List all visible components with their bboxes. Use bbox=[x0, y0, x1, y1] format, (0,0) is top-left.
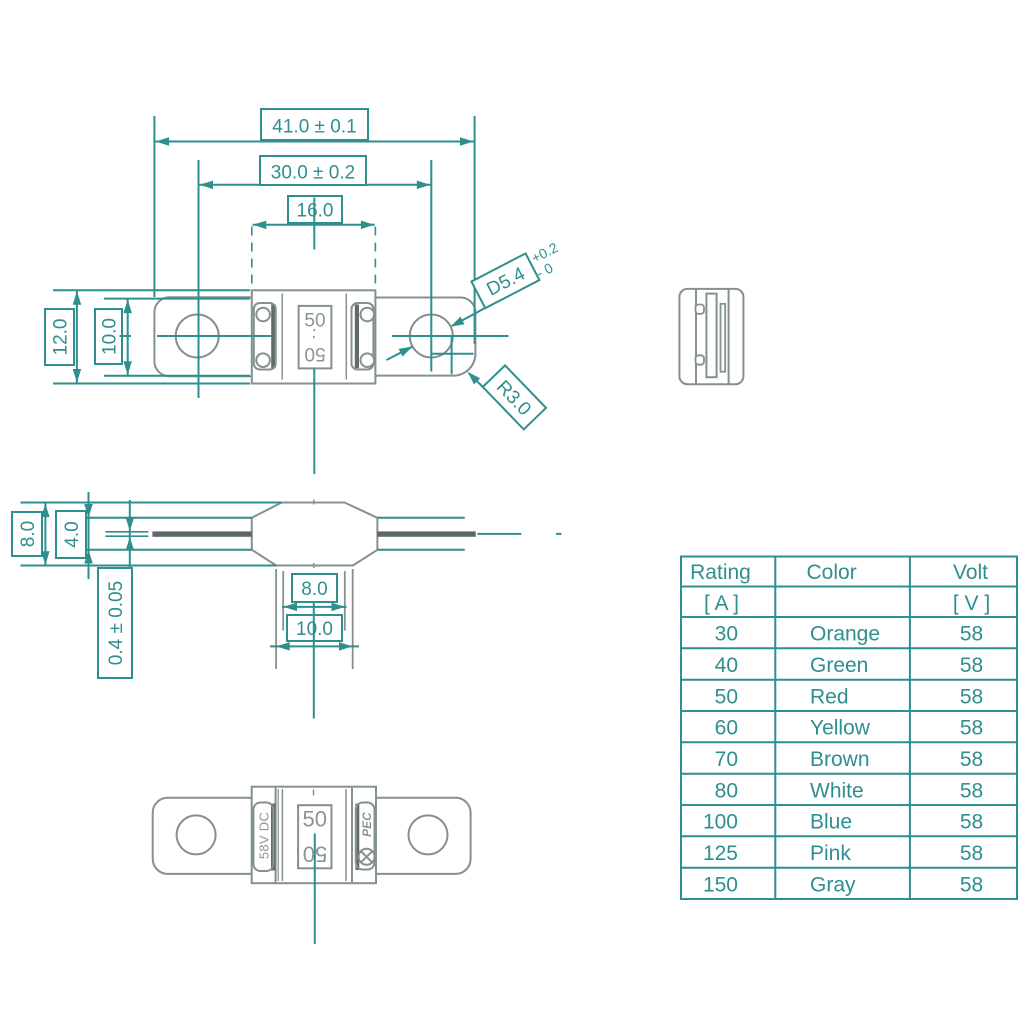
svg-text:[ V ]: [ V ] bbox=[953, 592, 990, 615]
svg-text:30.0 ± 0.2: 30.0 ± 0.2 bbox=[271, 162, 355, 183]
svg-text:Red: Red bbox=[810, 685, 849, 708]
svg-text:Orange: Orange bbox=[810, 623, 880, 646]
svg-text:50: 50 bbox=[715, 685, 738, 708]
svg-text:50: 50 bbox=[303, 807, 327, 832]
svg-text:0.4 ± 0.05: 0.4 ± 0.05 bbox=[106, 581, 127, 665]
svg-text:Brown: Brown bbox=[810, 748, 870, 771]
svg-text:Color: Color bbox=[807, 561, 857, 584]
svg-text:58: 58 bbox=[960, 654, 983, 677]
svg-text:White: White bbox=[810, 779, 864, 802]
svg-text:100: 100 bbox=[703, 811, 738, 834]
svg-text:125: 125 bbox=[703, 842, 738, 865]
svg-text:58: 58 bbox=[960, 717, 983, 740]
svg-text:58: 58 bbox=[960, 685, 983, 708]
svg-text:12.0: 12.0 bbox=[50, 319, 71, 356]
svg-text:10.0: 10.0 bbox=[99, 318, 120, 355]
svg-text:8.0: 8.0 bbox=[18, 521, 39, 547]
svg-text:58: 58 bbox=[960, 842, 983, 865]
svg-text:Volt: Volt bbox=[953, 561, 988, 584]
svg-text:Blue: Blue bbox=[810, 811, 852, 834]
svg-text:58: 58 bbox=[960, 873, 983, 896]
svg-text:PEC: PEC bbox=[360, 812, 374, 837]
svg-text:58: 58 bbox=[960, 623, 983, 646]
svg-text:80: 80 bbox=[715, 779, 738, 802]
svg-text:Green: Green bbox=[810, 654, 868, 677]
svg-text:58: 58 bbox=[960, 748, 983, 771]
svg-text:58: 58 bbox=[960, 779, 983, 802]
svg-text:60: 60 bbox=[715, 717, 738, 740]
svg-text:58V DC: 58V DC bbox=[257, 812, 272, 859]
svg-text:30: 30 bbox=[715, 623, 738, 646]
svg-text:Pink: Pink bbox=[810, 842, 851, 865]
svg-text:50: 50 bbox=[304, 310, 325, 331]
svg-text:[ A ]: [ A ] bbox=[704, 592, 739, 615]
svg-text:41.0 ± 0.1: 41.0 ± 0.1 bbox=[272, 117, 356, 138]
svg-text:40: 40 bbox=[715, 654, 738, 677]
svg-text:50: 50 bbox=[304, 343, 325, 364]
svg-text:4.0: 4.0 bbox=[62, 521, 83, 547]
svg-text:70: 70 bbox=[715, 748, 738, 771]
svg-text:Rating: Rating bbox=[690, 561, 751, 584]
svg-text:8.0: 8.0 bbox=[301, 579, 327, 600]
svg-text:58: 58 bbox=[960, 811, 983, 834]
svg-text:150: 150 bbox=[703, 873, 738, 896]
svg-text:Yellow: Yellow bbox=[810, 717, 871, 740]
svg-text:Gray: Gray bbox=[810, 873, 856, 896]
